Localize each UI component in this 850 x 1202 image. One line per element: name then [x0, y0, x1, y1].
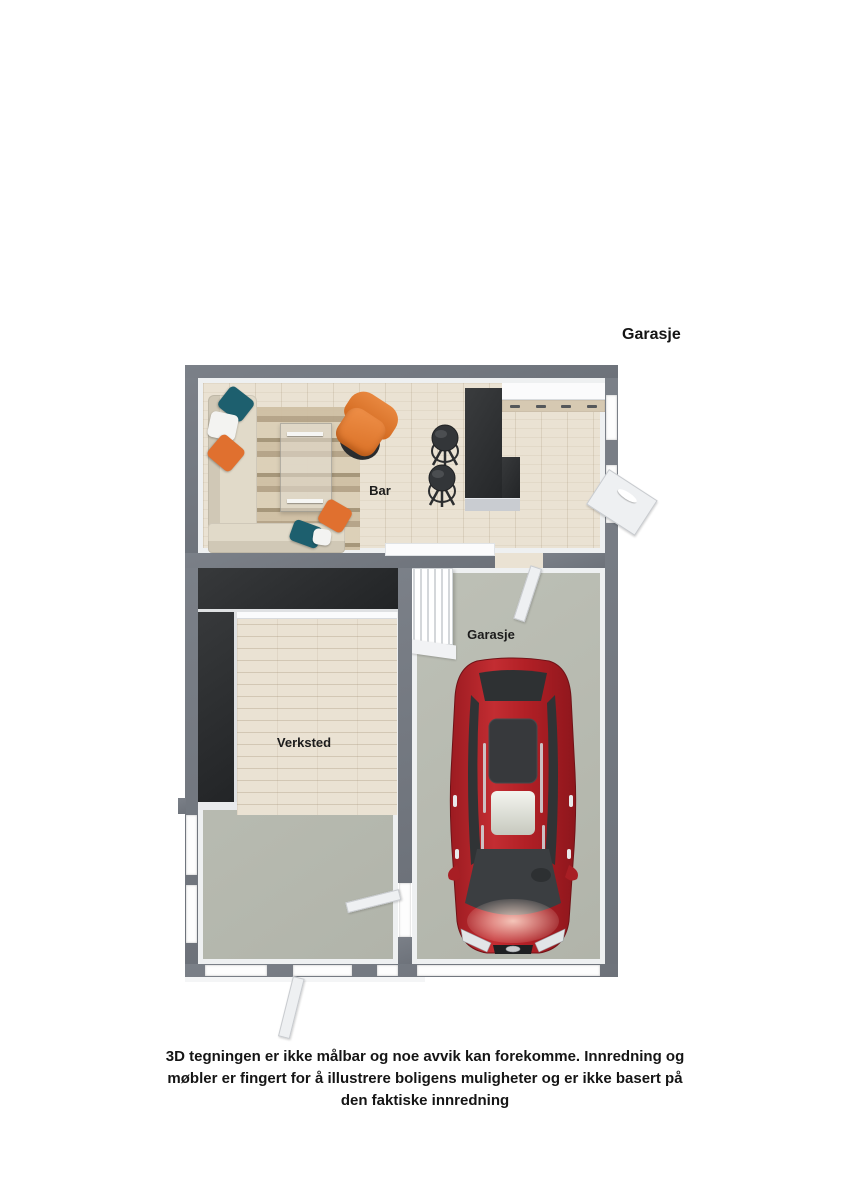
car-logo: [506, 946, 520, 952]
wall-middle-right: [543, 553, 605, 568]
wall-divider-upper: [398, 568, 412, 883]
bar-counter-foot: [502, 457, 520, 498]
car-trim-left-2: [455, 849, 459, 859]
drawer-handle: [510, 405, 520, 408]
car-trim-left: [453, 795, 457, 807]
workbench-left-arm: [198, 612, 237, 810]
garage-door: [417, 965, 600, 976]
window-bottom-left: [205, 965, 267, 976]
kitchen-counter: [502, 383, 605, 400]
floor-plan: Bar Verksted Garasje: [185, 365, 618, 977]
door-threshold-bar-garage: [495, 553, 543, 568]
car-steering-wheel: [531, 868, 551, 882]
bar-counter-main: [465, 388, 502, 498]
window-left-1: [186, 815, 197, 875]
disclaimer-text: 3D tegningen er ikke målbar og noe avvik…: [154, 1046, 696, 1112]
verksted-floor-wood: [237, 612, 397, 815]
car-trim-right-2: [567, 849, 571, 859]
workbench-end-cap: [198, 802, 237, 810]
window-bottom-small: [377, 965, 398, 976]
drawer-handle: [587, 405, 597, 408]
drawer-handle: [561, 405, 571, 408]
room-label-garasje: Garasje: [441, 627, 541, 642]
room-label-bar: Bar: [350, 483, 410, 498]
wall-divider-stub: [398, 937, 412, 964]
car: [447, 653, 579, 960]
verksted-cabinet-strip: [237, 612, 397, 619]
car-rear-window: [479, 670, 547, 701]
door-handle: [616, 487, 638, 505]
pillow-white-2: [312, 528, 332, 546]
page-title: Garasje: [622, 326, 681, 344]
kitchen-drawers: [502, 400, 605, 412]
exterior-sill: [185, 977, 425, 982]
sideboard: [385, 543, 495, 556]
car-trim-right: [569, 795, 573, 807]
workbench-top-arm: [198, 568, 398, 612]
bar-counter-base: [465, 498, 520, 511]
window-right-bar: [606, 395, 617, 440]
car-roof-rail: [540, 743, 543, 813]
car-hood-highlight: [467, 899, 559, 943]
car-sunroof: [489, 719, 537, 783]
wall-top: [185, 365, 618, 378]
exterior-door-leaf-bottom: [278, 976, 305, 1039]
floorplan-page: { "page": { "title": "Garasje", "disclai…: [0, 0, 850, 1202]
room-label-verksted: Verksted: [244, 735, 364, 750]
wall-left-upper: [185, 378, 198, 568]
drawer-handle: [536, 405, 546, 408]
window-left-2: [186, 885, 197, 943]
wall-left-pilaster: [178, 798, 186, 814]
car-glass-reflection: [491, 791, 535, 835]
door-opening-divider: [399, 883, 411, 937]
door-opening-bottom: [293, 965, 352, 976]
car-roof-rail: [483, 743, 486, 813]
bar-stool-2: [422, 463, 462, 509]
